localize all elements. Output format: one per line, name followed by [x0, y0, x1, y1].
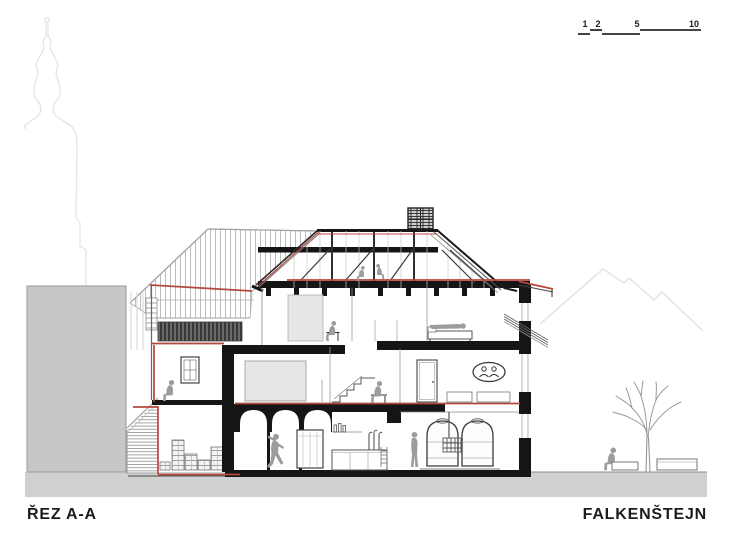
project-title: FALKENŠTEJN [583, 504, 707, 523]
scale-label-10: 10 [689, 19, 699, 29]
corrugated-cladding [158, 322, 242, 341]
scale-label-2: 2 [595, 19, 600, 29]
drawing-sheet: 1 2 5 10 ŘEZ A-A FALKENŠTEJN [0, 0, 750, 541]
low-cabinet-right [477, 392, 510, 402]
interior-door [417, 360, 437, 402]
bench-left [612, 462, 638, 470]
brew-kettle-right [462, 421, 493, 466]
section-drawing: 1 2 5 10 ŘEZ A-A FALKENŠTEJN [0, 0, 750, 541]
brew-kettle-left [427, 421, 458, 466]
bench-right [657, 459, 697, 470]
scale-label-1: 1 [582, 19, 587, 29]
scale-label-5: 5 [634, 19, 639, 29]
neighbor-building-mass [27, 286, 126, 472]
section-title: ŘEZ A-A [27, 504, 97, 523]
low-cabinet-left [447, 392, 472, 402]
projection-screen [245, 361, 306, 401]
stair-door-panel [288, 295, 323, 341]
pub-entrance-door [297, 430, 323, 468]
